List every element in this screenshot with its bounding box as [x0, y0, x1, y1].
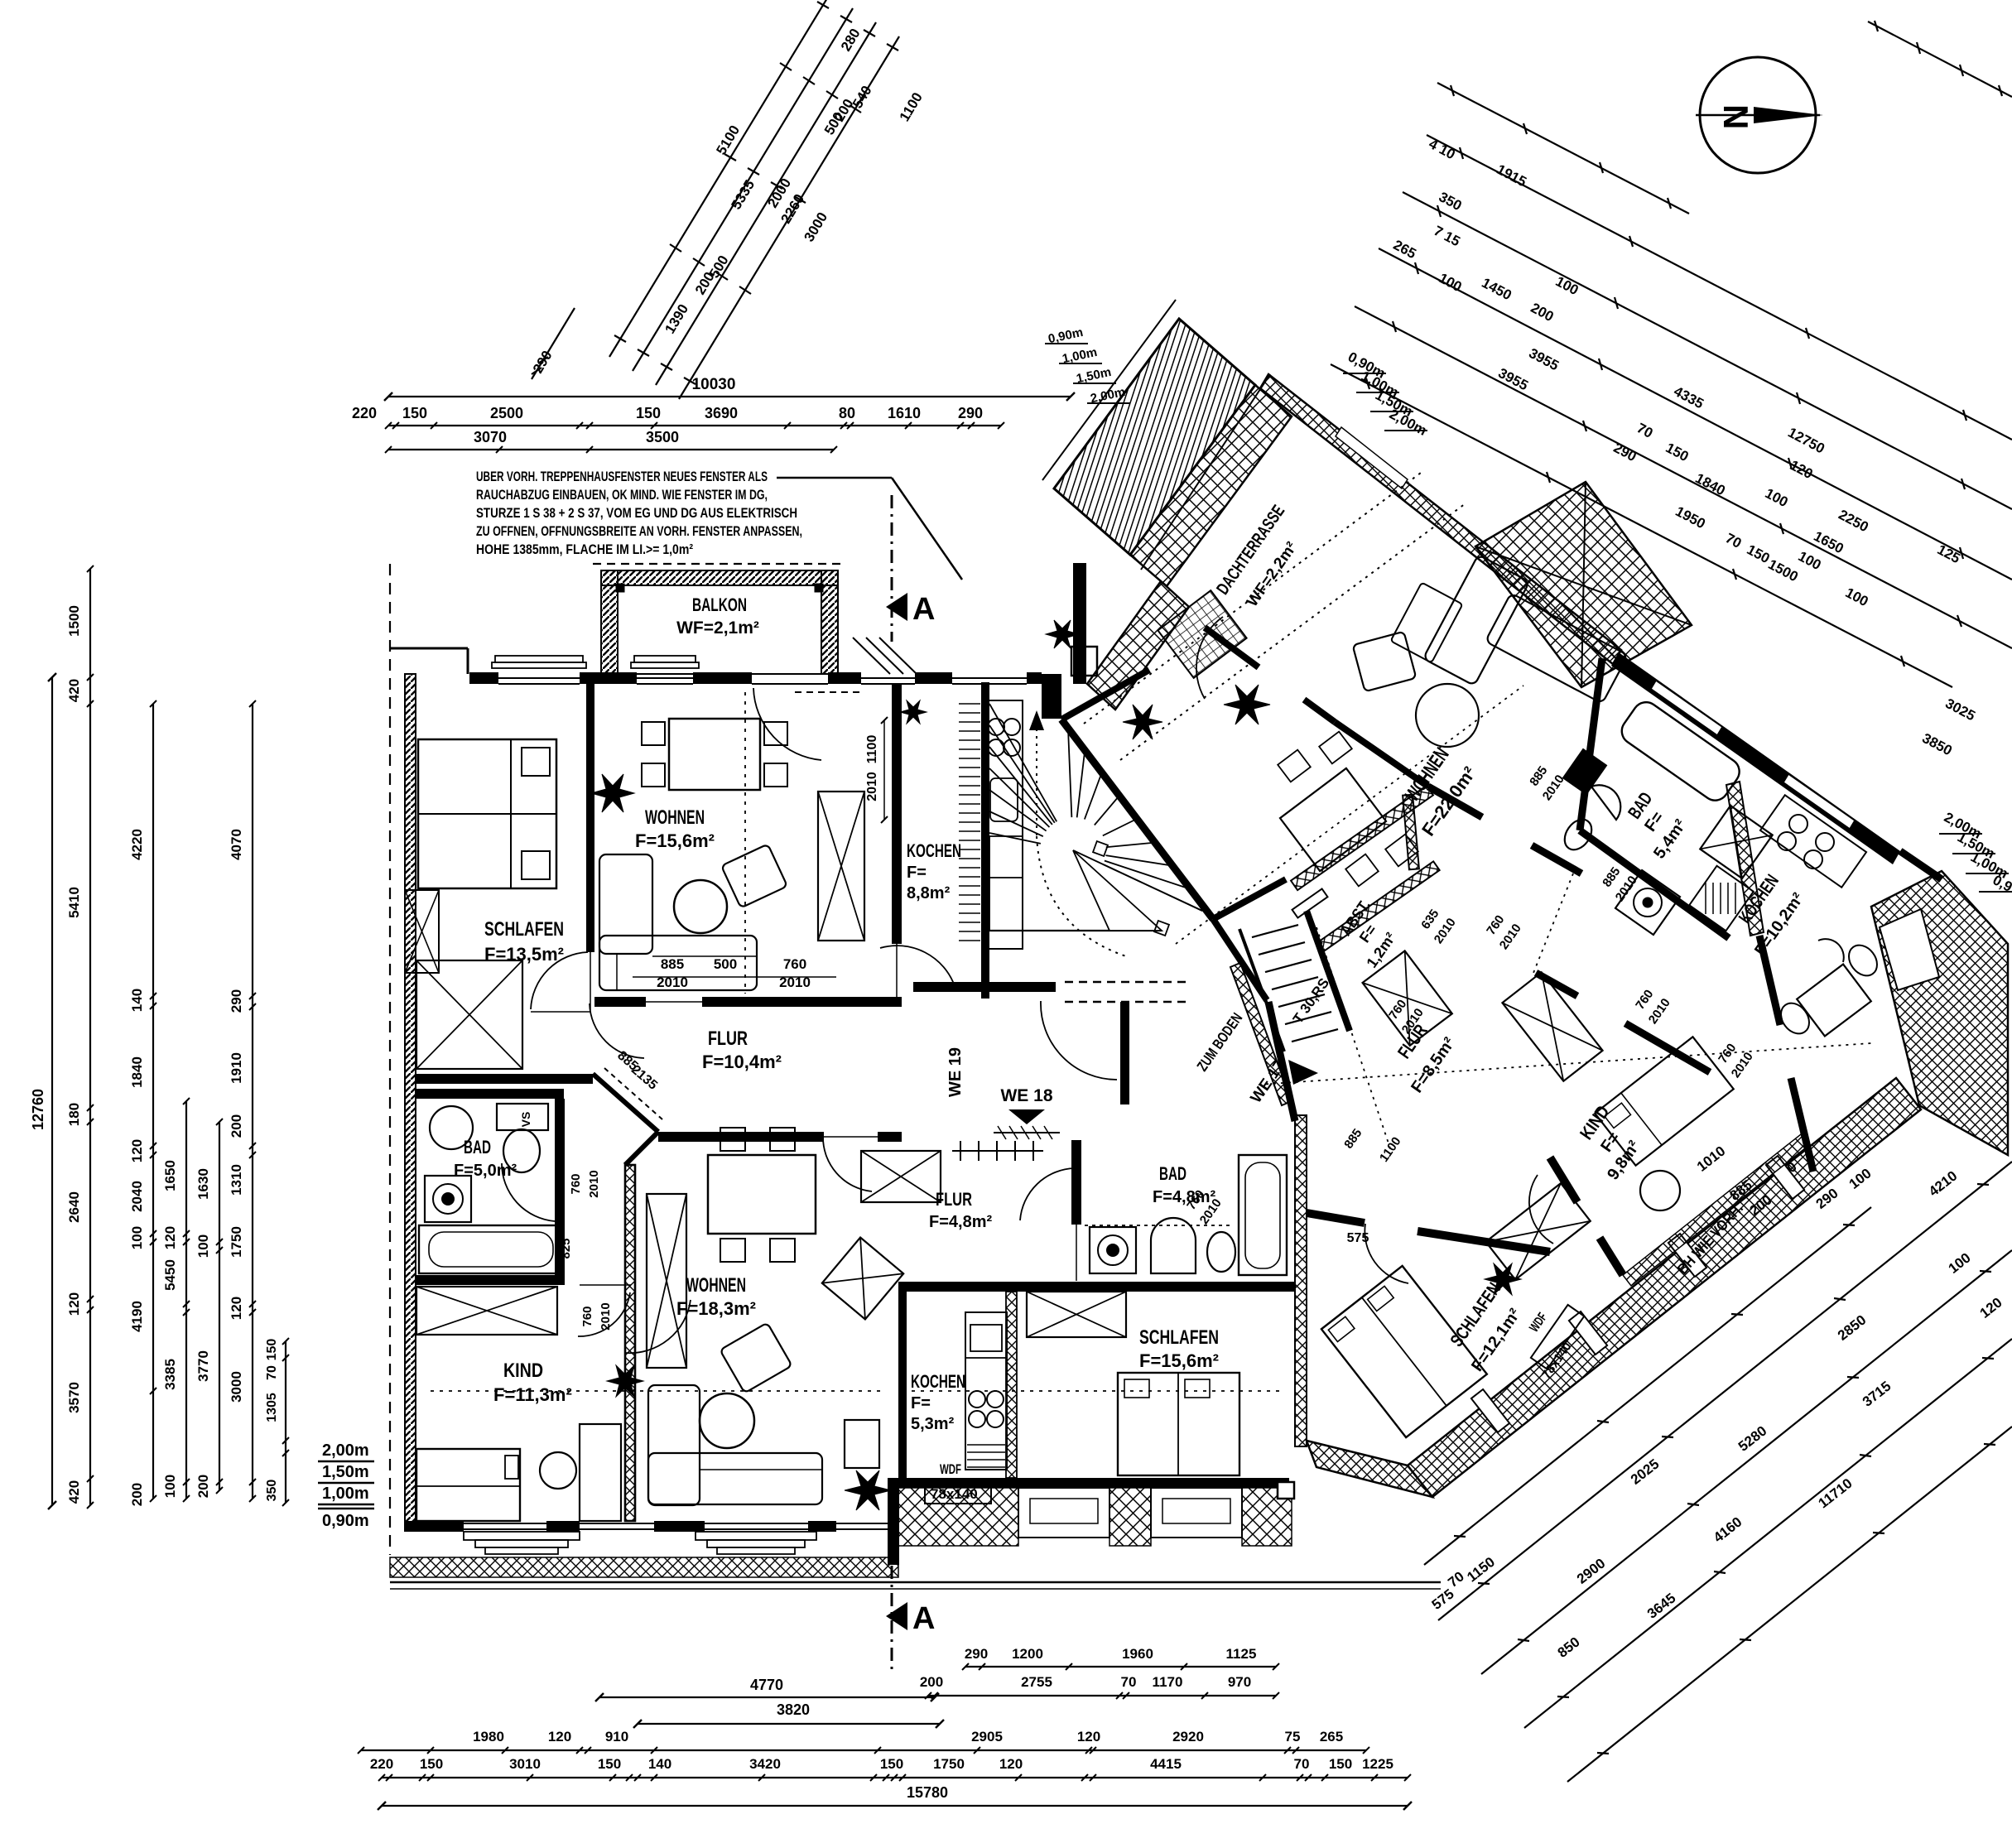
svg-text:2,00m: 2,00m	[322, 1441, 369, 1460]
svg-text:885: 885	[661, 956, 684, 972]
svg-text:1960: 1960	[1122, 1646, 1153, 1662]
svg-text:290: 290	[229, 989, 244, 1013]
svg-text:140: 140	[129, 989, 145, 1012]
svg-text:2010: 2010	[599, 1302, 613, 1330]
svg-text:760: 760	[783, 956, 806, 972]
svg-text:UBER VORH. TREPPENHAUSFENSTER: UBER VORH. TREPPENHAUSFENSTER NEUES FENS…	[476, 469, 768, 484]
svg-text:F=: F=	[907, 864, 927, 882]
svg-text:5410: 5410	[66, 887, 82, 918]
svg-text:970: 970	[1228, 1674, 1251, 1690]
svg-text:2905: 2905	[971, 1729, 1003, 1745]
svg-text:1305: 1305	[265, 1393, 279, 1422]
svg-text:70: 70	[1294, 1756, 1310, 1772]
svg-text:F=10,4m²: F=10,4m²	[702, 1052, 782, 1072]
svg-text:WE 18: WE 18	[1000, 1086, 1052, 1105]
svg-text:3010: 3010	[509, 1756, 541, 1772]
svg-text:WE 19: WE 19	[946, 1047, 965, 1097]
svg-text:A: A	[912, 592, 935, 627]
svg-text:200: 200	[129, 1483, 145, 1506]
svg-text:8,8m²: 8,8m²	[907, 884, 951, 902]
svg-text:220: 220	[352, 405, 377, 421]
svg-text:1,00m: 1,00m	[322, 1485, 369, 1503]
svg-text:150: 150	[402, 405, 427, 421]
svg-text:F=13,5m²: F=13,5m²	[484, 944, 564, 965]
svg-text:200: 200	[229, 1114, 244, 1138]
svg-text:WOHNEN: WOHNEN	[645, 806, 705, 829]
svg-text:2755: 2755	[1021, 1674, 1052, 1690]
svg-text:1310: 1310	[229, 1164, 244, 1196]
svg-text:KOCHEN: KOCHEN	[911, 1371, 965, 1392]
svg-text:350: 350	[265, 1480, 279, 1502]
svg-text:F=18,3m²: F=18,3m²	[676, 1298, 756, 1319]
svg-text:2010: 2010	[587, 1170, 601, 1197]
svg-text:150: 150	[420, 1756, 443, 1772]
svg-text:ZU OFFNEN, OFFNUNGSBREITE AN V: ZU OFFNEN, OFFNUNGSBREITE AN VORH. FENST…	[476, 523, 802, 539]
svg-text:WDF: WDF	[940, 1461, 961, 1477]
svg-text:1125: 1125	[1226, 1646, 1257, 1662]
svg-text:80: 80	[839, 405, 855, 421]
svg-text:5450: 5450	[162, 1259, 178, 1291]
svg-text:1750: 1750	[229, 1226, 244, 1258]
svg-text:265: 265	[1320, 1729, 1343, 1745]
svg-text:BAD: BAD	[1159, 1163, 1187, 1184]
svg-text:WF=2,1m²: WF=2,1m²	[676, 618, 759, 638]
svg-text:2640: 2640	[66, 1191, 82, 1223]
svg-text:75: 75	[1285, 1729, 1301, 1745]
svg-text:BALKON: BALKON	[692, 594, 747, 615]
svg-text:F=4,8m²: F=4,8m²	[929, 1213, 992, 1231]
svg-text:2040: 2040	[129, 1181, 145, 1212]
svg-text:3690: 3690	[705, 405, 738, 421]
svg-text:910: 910	[605, 1729, 628, 1745]
svg-text:RAUCHABZUG EINBAUEN, OK MIND.: RAUCHABZUG EINBAUEN, OK MIND. WIE FENSTE…	[476, 487, 768, 503]
svg-text:420: 420	[66, 679, 82, 702]
svg-text:575: 575	[1347, 1231, 1369, 1245]
svg-text:1225: 1225	[1362, 1756, 1393, 1772]
svg-text:3000: 3000	[229, 1371, 244, 1403]
svg-text:290: 290	[965, 1646, 988, 1662]
svg-text:120: 120	[548, 1729, 571, 1745]
svg-text:10030: 10030	[692, 376, 736, 393]
svg-text:120: 120	[66, 1292, 82, 1316]
svg-text:1,50m: 1,50m	[322, 1463, 369, 1481]
svg-text:5,3m²: 5,3m²	[911, 1415, 955, 1433]
svg-text:STURZE 1 S 38 + 2 S 37, VOM EG: STURZE 1 S 38 + 2 S 37, VOM EG UND DG AU…	[476, 505, 797, 521]
svg-text:0,90m: 0,90m	[322, 1512, 369, 1530]
svg-text:100: 100	[195, 1234, 211, 1258]
svg-text:1100: 1100	[865, 735, 879, 764]
svg-text:KIND: KIND	[503, 1360, 543, 1382]
svg-text:120: 120	[1077, 1729, 1100, 1745]
svg-text:A: A	[912, 1601, 935, 1636]
svg-text:1980: 1980	[473, 1729, 504, 1745]
svg-text:140: 140	[648, 1756, 671, 1772]
svg-text:F=15,6m²: F=15,6m²	[635, 830, 715, 851]
svg-text:150: 150	[1329, 1756, 1352, 1772]
svg-text:3385: 3385	[162, 1359, 178, 1390]
svg-text:4070: 4070	[229, 829, 244, 860]
svg-text:200: 200	[920, 1674, 943, 1690]
svg-text:3770: 3770	[195, 1350, 211, 1382]
svg-text:F=: F=	[911, 1394, 931, 1412]
svg-text:760: 760	[580, 1306, 594, 1326]
svg-text:SCHLAFEN: SCHLAFEN	[484, 918, 564, 941]
svg-text:500: 500	[714, 956, 737, 972]
svg-text:150: 150	[265, 1339, 279, 1361]
svg-text:15780: 15780	[907, 1784, 948, 1801]
svg-text:F=11,3m²: F=11,3m²	[493, 1384, 572, 1405]
svg-text:3570: 3570	[66, 1382, 82, 1413]
svg-text:120: 120	[999, 1756, 1023, 1772]
svg-text:150: 150	[598, 1756, 621, 1772]
svg-text:3070: 3070	[474, 429, 507, 445]
svg-text:3820: 3820	[777, 1701, 810, 1718]
svg-text:1650: 1650	[162, 1160, 178, 1191]
svg-text:1750: 1750	[933, 1756, 965, 1772]
svg-text:150: 150	[636, 405, 661, 421]
svg-text:WOHNEN: WOHNEN	[686, 1274, 746, 1297]
svg-text:1630: 1630	[195, 1168, 211, 1200]
svg-text:2010: 2010	[865, 772, 879, 801]
svg-text:4415: 4415	[1150, 1756, 1182, 1772]
svg-text:BAD: BAD	[464, 1137, 491, 1157]
svg-text:N: N	[1716, 104, 1755, 129]
svg-text:420: 420	[66, 1480, 82, 1504]
svg-text:SCHLAFEN: SCHLAFEN	[1139, 1326, 1219, 1349]
svg-text:KOCHEN: KOCHEN	[907, 840, 961, 861]
svg-text:760: 760	[569, 1173, 583, 1194]
svg-text:70: 70	[265, 1365, 279, 1380]
svg-text:FLUR: FLUR	[708, 1027, 748, 1050]
svg-text:200: 200	[195, 1475, 211, 1498]
svg-text:1910: 1910	[229, 1052, 244, 1084]
svg-text:120: 120	[162, 1226, 178, 1249]
svg-text:4190: 4190	[129, 1301, 145, 1332]
svg-text:150: 150	[880, 1756, 903, 1772]
svg-text:1840: 1840	[129, 1056, 145, 1088]
svg-text:290: 290	[958, 405, 983, 421]
svg-text:HOHE 1385mm, FLACHE IM LI.>= 1: HOHE 1385mm, FLACHE IM LI.>= 1,0m²	[476, 541, 693, 557]
svg-text:3420: 3420	[749, 1756, 781, 1772]
svg-text:70: 70	[1121, 1674, 1137, 1690]
svg-text:100: 100	[162, 1475, 178, 1498]
svg-text:1170: 1170	[1153, 1674, 1183, 1690]
svg-text:120: 120	[129, 1139, 145, 1162]
svg-text:1500: 1500	[66, 605, 82, 637]
svg-text:3500: 3500	[646, 429, 679, 445]
svg-text:4220: 4220	[129, 829, 145, 860]
svg-text:1200: 1200	[1012, 1646, 1043, 1662]
svg-text:VS: VS	[519, 1112, 532, 1128]
svg-text:1610: 1610	[888, 405, 921, 421]
svg-text:2500: 2500	[490, 405, 523, 421]
svg-text:2920: 2920	[1172, 1729, 1204, 1745]
svg-text:12760: 12760	[30, 1089, 46, 1130]
svg-text:180: 180	[66, 1103, 82, 1126]
svg-text:825: 825	[559, 1238, 573, 1258]
svg-text:120: 120	[229, 1297, 244, 1320]
svg-text:F=15,6m²: F=15,6m²	[1139, 1350, 1219, 1371]
svg-text:220: 220	[370, 1756, 393, 1772]
svg-text:100: 100	[129, 1226, 145, 1249]
svg-text:4770: 4770	[750, 1677, 783, 1693]
